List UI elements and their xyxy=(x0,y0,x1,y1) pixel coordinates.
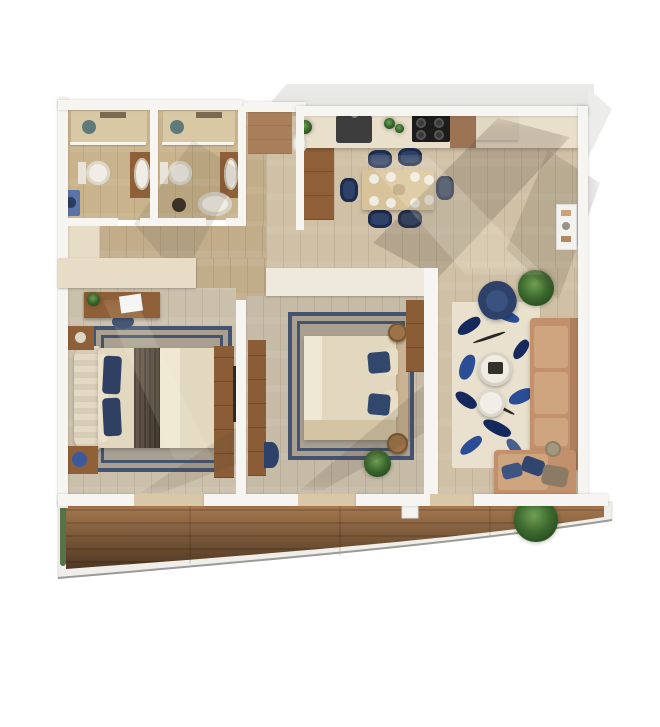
kitchen-herb-pot xyxy=(395,124,404,133)
dining-chair xyxy=(398,148,422,166)
wall-bedroom2-right xyxy=(424,268,438,494)
exterior-shadow-wedge xyxy=(588,88,612,158)
nightstand-lamp xyxy=(75,332,86,343)
bed2-foot-blanket xyxy=(304,420,396,440)
rug-pattern-blob xyxy=(457,353,477,382)
bath-stool xyxy=(172,198,186,212)
cooktop-burner xyxy=(416,118,426,128)
bedroom1-tv-console xyxy=(214,346,234,478)
chaise-throw xyxy=(540,464,569,488)
balcony-planter-strip xyxy=(60,506,66,566)
shelf-decor xyxy=(561,210,571,216)
side-stool xyxy=(545,441,561,457)
built-in-wardrobe xyxy=(406,300,424,372)
rug-pattern-blob xyxy=(510,338,533,362)
round-nightstand-bottom xyxy=(387,433,408,454)
wall-right xyxy=(578,106,588,502)
shelf-decor xyxy=(561,236,571,242)
floor-plan-canvas xyxy=(0,0,660,727)
bed2-pillow xyxy=(367,393,391,416)
rug-pattern-stroke xyxy=(472,331,505,344)
bedroom2-plant xyxy=(364,450,391,477)
kitchen-sink xyxy=(336,115,372,143)
wall-entry-right xyxy=(296,106,304,230)
wall-bathrooms-bottom xyxy=(58,218,118,226)
shelf-decor xyxy=(562,222,570,230)
plate xyxy=(369,196,379,206)
bed1-sheet-band xyxy=(160,348,180,448)
bed1-pillow xyxy=(102,398,122,437)
desk-plant xyxy=(87,293,100,306)
coffee-table-tray xyxy=(488,362,503,374)
coffee-table-small xyxy=(477,389,505,417)
rug-pattern-blob xyxy=(457,434,485,458)
vanity-sink xyxy=(224,158,238,190)
bathtub xyxy=(198,192,232,216)
rug-pattern-blob xyxy=(455,314,484,337)
balcony-door-threshold-bedroom2 xyxy=(298,494,356,506)
sofa-cushion xyxy=(534,372,568,414)
bed2-pillow xyxy=(367,351,391,374)
shower-fixture xyxy=(196,112,222,118)
plate xyxy=(386,172,396,182)
shower-glass xyxy=(70,142,146,145)
bed1-pillow xyxy=(102,356,122,395)
wall-bottom-seg xyxy=(474,494,608,506)
table-centerpiece xyxy=(393,184,405,195)
nightstand-decor-blue xyxy=(72,452,87,467)
toilet-bowl xyxy=(168,161,192,185)
round-nightstand-top xyxy=(388,323,407,342)
sofa-cushion xyxy=(534,326,568,368)
wall-bottom-seg xyxy=(204,494,298,506)
wall-niche-shelf xyxy=(556,204,577,250)
plate xyxy=(369,174,379,184)
balcony-door-threshold-bedroom1 xyxy=(134,494,204,506)
wall-left xyxy=(58,98,68,508)
wall-bathrooms-bottom xyxy=(140,218,206,226)
shower-glass xyxy=(162,142,234,145)
wall-bathroom-divider xyxy=(150,106,158,226)
sofa-backrest xyxy=(570,318,578,470)
vanity-sink xyxy=(134,158,150,190)
balcony-door-threshold-living xyxy=(430,494,474,506)
entry-doormat xyxy=(248,108,292,154)
bedroom2-pouf xyxy=(264,442,279,468)
dining-chair xyxy=(398,210,422,228)
dining-chair xyxy=(340,178,358,202)
shower-drain xyxy=(170,120,184,134)
kitchen-herb-pot xyxy=(384,118,395,129)
rug-pattern-blob xyxy=(481,415,513,440)
dining-chair xyxy=(368,150,392,168)
wall-tv xyxy=(233,366,236,422)
plate xyxy=(386,198,396,208)
rug-pattern-blob xyxy=(453,388,479,413)
shower-fixture xyxy=(100,112,126,118)
wall-entry-left xyxy=(238,106,246,226)
wall-top-kitchen xyxy=(296,106,588,116)
toilet-tank xyxy=(160,162,168,184)
plate xyxy=(424,175,434,185)
bed1-throw-runner xyxy=(134,348,160,448)
dining-chair xyxy=(368,210,392,228)
armchair-seat xyxy=(486,290,508,312)
plate xyxy=(424,195,434,205)
cooktop-burner xyxy=(434,118,444,128)
cooktop-burner xyxy=(434,130,444,140)
dining-chair xyxy=(436,176,454,200)
bed1-headboard xyxy=(74,346,100,450)
wall-bottom-seg xyxy=(356,494,430,506)
toilet-bowl xyxy=(86,161,110,185)
plate xyxy=(410,172,420,182)
living-plant xyxy=(518,270,554,306)
toilet-tank xyxy=(78,162,86,184)
wall-bedroom-divider xyxy=(236,300,246,494)
shower-drain xyxy=(82,120,96,134)
wall-bottom-seg xyxy=(58,494,134,506)
wall-bedroom2-top xyxy=(266,268,424,296)
wall-bedroom1-top xyxy=(58,258,196,288)
desk-laptop xyxy=(119,294,143,314)
plate xyxy=(410,198,420,208)
cooktop-burner xyxy=(416,130,426,140)
